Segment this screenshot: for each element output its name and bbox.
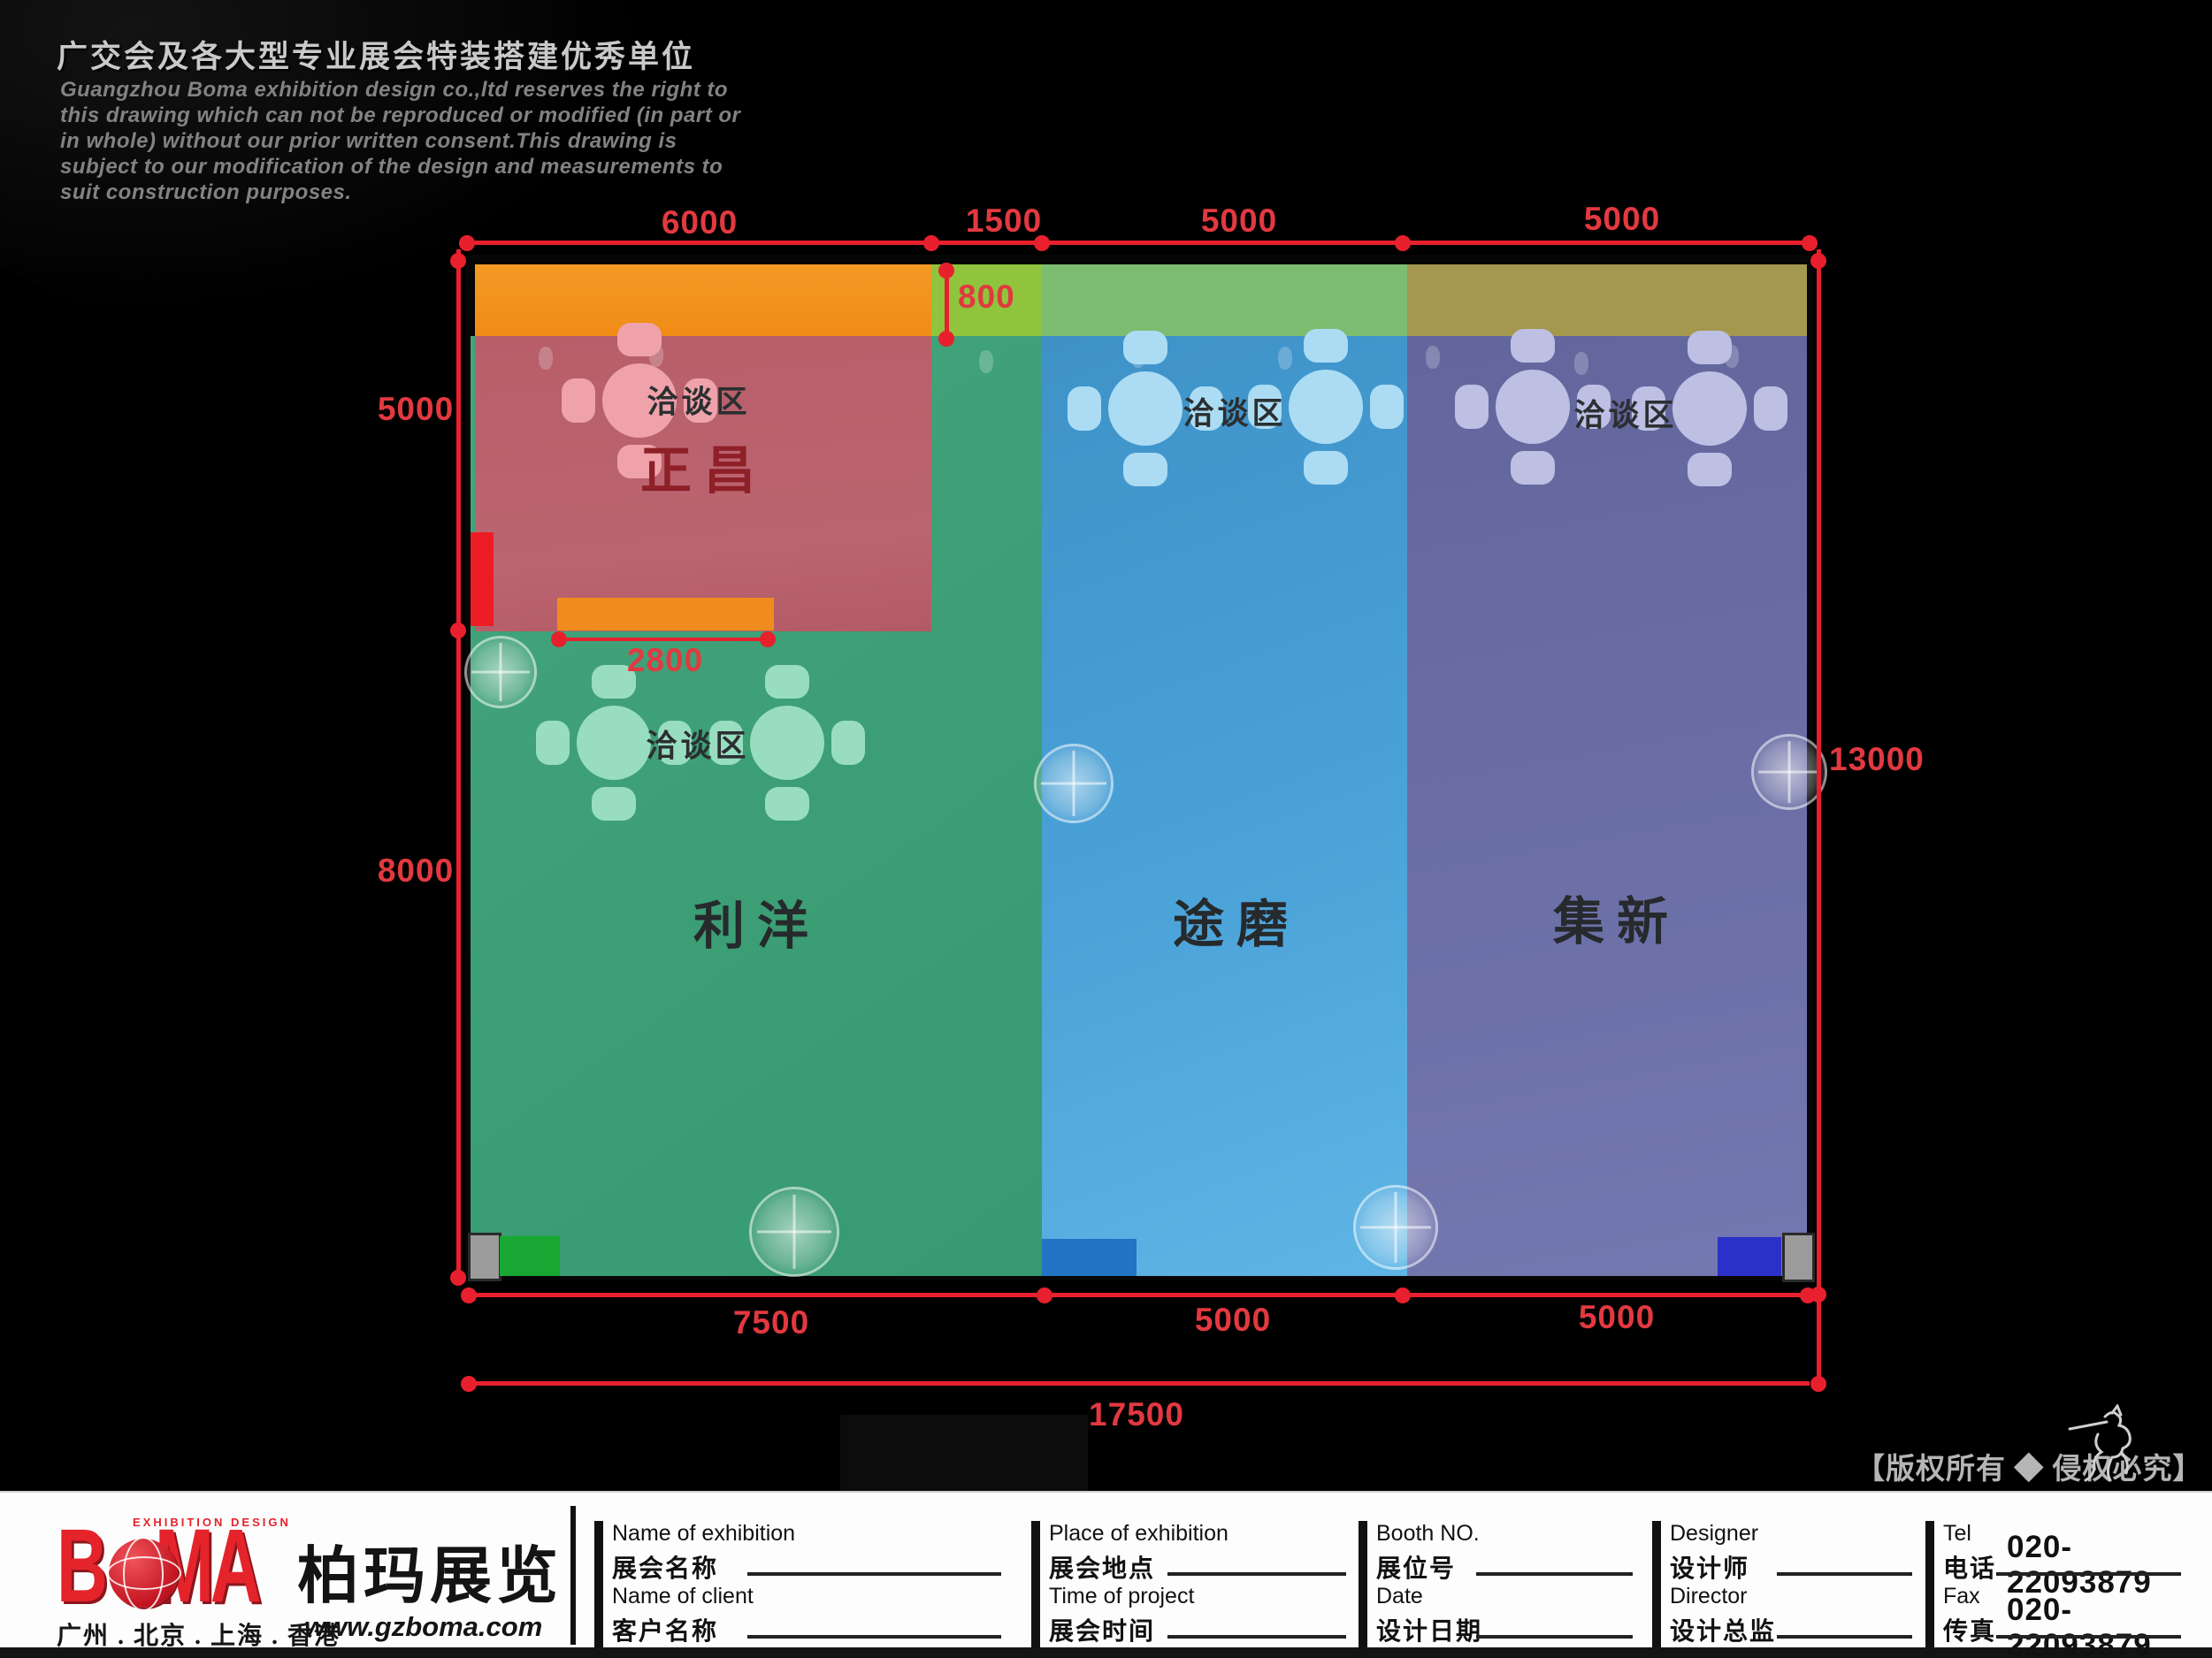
field-underline (747, 1635, 1001, 1639)
field-tick (1652, 1521, 1661, 1585)
field-tick (1359, 1521, 1367, 1585)
disclaimer-line: Guangzhou Boma exhibition design co.,ltd… (60, 78, 728, 103)
dimension-label: 13000 (1829, 741, 1925, 778)
field-underline (1996, 1635, 2181, 1639)
dimension-dot (1800, 1287, 1816, 1303)
table (1108, 371, 1183, 446)
dimension-line-total (467, 1381, 1810, 1386)
field-tel: Tel 电话 (1925, 1521, 1996, 1585)
dimension-line-2800 (559, 638, 769, 641)
field-underline (1996, 1572, 2181, 1576)
table (1496, 370, 1570, 444)
field-date: Date 设计日期 (1359, 1584, 1482, 1647)
knight-logo-icon (2061, 1404, 2146, 1489)
drawing-canvas: 广交会及各大型专业展会特装搭建优秀单位 Guangzhou Boma exhib… (0, 0, 2212, 1658)
chair (1511, 451, 1555, 485)
page-title: 广交会及各大型专业展会特装搭建优秀单位 (57, 32, 695, 77)
field-underline (1777, 1635, 1912, 1639)
field-label-en: Name of exhibition (612, 1521, 795, 1547)
marker-gray (468, 1233, 501, 1281)
chair (592, 787, 636, 821)
field-tick (1652, 1584, 1661, 1647)
field-label-cn: 电话 (1943, 1549, 1996, 1585)
dimension-dot (1810, 1376, 1826, 1392)
chair (765, 787, 809, 821)
dimension-label: 5000 (1201, 202, 1277, 240)
field-name-of-client: Name of client 客户名称 (594, 1584, 754, 1647)
chair (1304, 451, 1348, 485)
dimension-label: 800 (958, 279, 1015, 316)
disclaimer-line: this drawing which can not be reproduced… (60, 103, 740, 128)
table (577, 706, 651, 780)
chair (1304, 329, 1348, 363)
dimension-label: 5000 (1195, 1302, 1271, 1339)
meeting-area-label: 洽谈区 (647, 378, 750, 423)
table (750, 706, 824, 780)
dimension-line-800 (945, 268, 949, 340)
field-label-cn: 展会名称 (612, 1549, 795, 1585)
plant-icon (749, 1187, 839, 1277)
zone-name-jixin: 集新 (1553, 880, 1680, 954)
field-label-en: Place of exhibition (1049, 1521, 1228, 1547)
wall-strip-olive (1407, 264, 1807, 336)
field-tick (1925, 1521, 1934, 1585)
dimension-label: 2800 (627, 642, 703, 679)
meeting-area-label: 洽谈区 (1573, 391, 1677, 436)
logo-tagline: EXHIBITION DESIGN (133, 1516, 291, 1529)
field-label-cn: 展会地点 (1049, 1549, 1228, 1585)
zone-name-liyang: 利洋 (693, 884, 821, 959)
logo-letter-b: B (57, 1521, 104, 1613)
disclaimer-line: subject to our modification of the desig… (60, 155, 723, 180)
dimension-label: 8000 (378, 852, 454, 890)
brand-website: www.gzboma.com (304, 1611, 542, 1643)
field-label-en: Time of project (1049, 1584, 1194, 1609)
fax-number: 020-22093879 (2007, 1593, 2212, 1658)
chair (617, 323, 662, 356)
field-label-en: Name of client (612, 1584, 754, 1609)
dimension-line-right (1817, 249, 1821, 1385)
chair (1123, 453, 1167, 486)
field-label-cn: 展会时间 (1049, 1612, 1194, 1647)
field-underline (1777, 1572, 1912, 1576)
field-label-en: Booth NO. (1376, 1521, 1480, 1547)
field-underline (1167, 1572, 1346, 1576)
tel-number: 020-22093879 (2007, 1530, 2212, 1601)
field-booth-no: Booth NO. 展位号 (1359, 1521, 1480, 1585)
dimension-dot (459, 235, 475, 251)
spotlight-icon (979, 350, 993, 373)
meeting-area-label: 洽谈区 (646, 722, 749, 767)
field-label-en: Director (1670, 1584, 1776, 1609)
chair (765, 665, 809, 699)
field-tick (1031, 1584, 1040, 1647)
plant-icon (1353, 1185, 1438, 1270)
plant-icon (464, 636, 537, 708)
dimension-dot (450, 253, 466, 269)
dimension-label: 5000 (1579, 1299, 1655, 1336)
field-underline (1476, 1635, 1633, 1639)
chair (1511, 329, 1555, 363)
field-underline (1476, 1572, 1633, 1576)
marker-blue (1042, 1239, 1137, 1276)
field-label-en: Date (1376, 1584, 1482, 1609)
chair (562, 378, 595, 423)
zone-name-tumo: 途磨 (1173, 882, 1300, 957)
dimension-label: 1500 (966, 202, 1042, 240)
disclaimer-line: suit construction purposes. (60, 180, 352, 205)
field-director: Director 设计总监 (1652, 1584, 1776, 1647)
dimension-dot (1802, 235, 1818, 251)
table (1289, 370, 1363, 444)
table (1672, 371, 1747, 446)
copyright-text: 【版权所有 ◆ 侵权必究】 (1856, 1445, 2203, 1487)
dimension-label: 7500 (733, 1304, 809, 1341)
dimension-dot (1037, 1287, 1052, 1303)
globe-icon (109, 1539, 178, 1608)
dimension-dot (461, 1287, 477, 1303)
field-tick (594, 1521, 603, 1585)
dimension-dot (760, 631, 776, 647)
dimension-dot (923, 235, 939, 251)
field-tick (1359, 1584, 1367, 1647)
field-underline (747, 1572, 1001, 1576)
brand-name-cn: 柏玛展览 (297, 1526, 563, 1616)
dimension-dot (1395, 235, 1411, 251)
dimension-line-left (456, 249, 461, 1281)
meeting-area-label: 洽谈区 (1183, 389, 1286, 434)
reception-desk (557, 598, 774, 630)
field-label-en: Fax (1943, 1584, 1996, 1609)
spotlight-icon (539, 347, 553, 370)
marker-gray (1782, 1233, 1815, 1282)
field-label-en: Designer (1670, 1521, 1758, 1547)
field-tick (594, 1584, 603, 1647)
field-label-cn: 设计日期 (1376, 1612, 1482, 1647)
spotlight-icon (1426, 346, 1440, 369)
dimension-line-bottom (467, 1293, 1808, 1297)
wall-strip-medium-green (1042, 264, 1407, 336)
chair (1068, 386, 1101, 431)
dimension-dot (551, 631, 567, 647)
field-designer: Designer 设计师 (1652, 1521, 1758, 1585)
field-underline (1167, 1635, 1346, 1639)
marker-green (500, 1236, 560, 1276)
plant-icon (1034, 744, 1114, 823)
chair (1370, 385, 1404, 429)
field-label-cn: 设计总监 (1670, 1612, 1776, 1647)
footer-divider (570, 1506, 576, 1645)
dimension-dot (450, 623, 466, 638)
chair (536, 721, 570, 765)
field-label-cn: 设计师 (1670, 1549, 1758, 1585)
field-tick (1925, 1584, 1934, 1647)
field-tick (1031, 1521, 1040, 1585)
field-label-cn: 传真 (1943, 1612, 1996, 1647)
chair (1123, 331, 1167, 364)
dimension-dot (450, 1270, 466, 1286)
chair (1754, 386, 1787, 431)
dimension-label: 17500 (1089, 1396, 1184, 1433)
dimension-dot (1395, 1287, 1411, 1303)
disclaimer-line: in whole) without our prior written cons… (60, 129, 677, 154)
chair (1455, 385, 1489, 429)
dimension-dot (461, 1376, 477, 1392)
chair (1688, 331, 1732, 364)
field-label-cn: 展位号 (1376, 1549, 1480, 1585)
brand-cities: 广州 . 北京 . 上海 . 香港 (57, 1616, 341, 1652)
dimension-dot (938, 331, 954, 347)
chair (1688, 453, 1732, 486)
chair (831, 721, 865, 765)
marker-navy (1718, 1237, 1781, 1276)
dimension-label: 5000 (378, 391, 454, 428)
field-fax: Fax 传真 (1925, 1584, 1996, 1647)
field-label-en: Tel (1943, 1521, 1996, 1547)
red-pillar (471, 532, 494, 626)
dimension-dot (1810, 253, 1826, 269)
dimension-dot (938, 263, 954, 279)
field-label-cn: 客户名称 (612, 1612, 754, 1647)
dimension-label: 5000 (1584, 201, 1660, 238)
zone-name-zhengchang: 正昌 (640, 429, 768, 503)
dimension-label: 6000 (662, 204, 738, 241)
